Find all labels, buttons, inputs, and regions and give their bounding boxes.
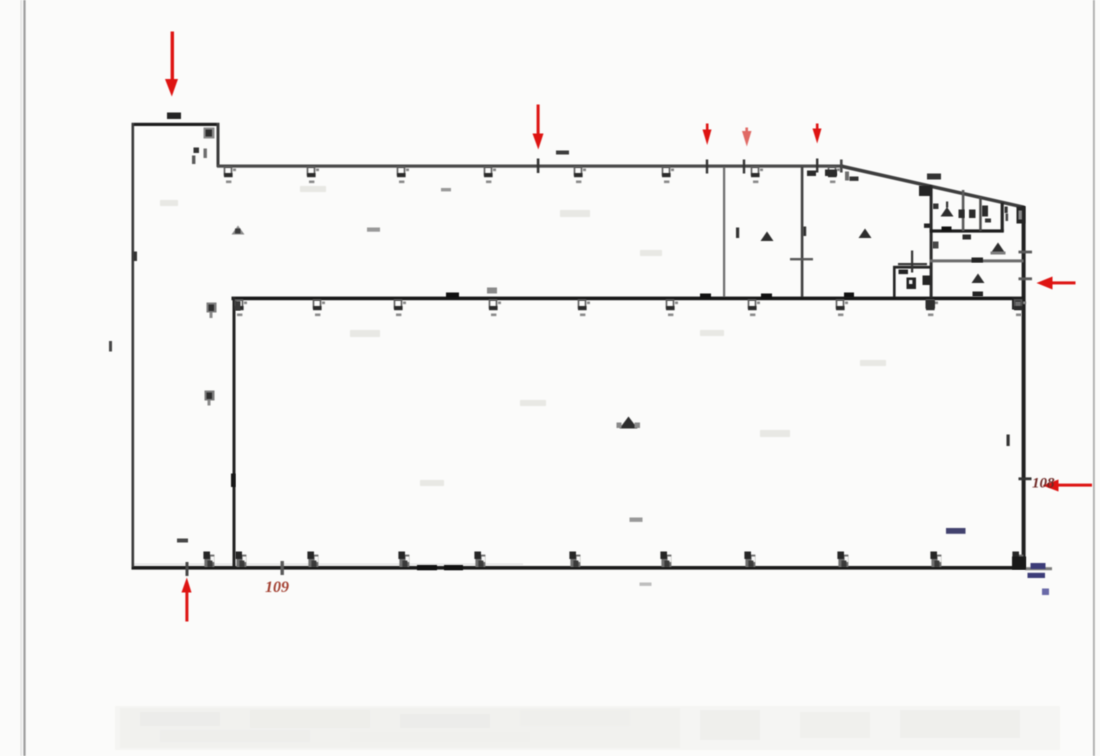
svg-text:108: 108 [1032,476,1055,492]
svg-text:109: 109 [265,579,289,596]
